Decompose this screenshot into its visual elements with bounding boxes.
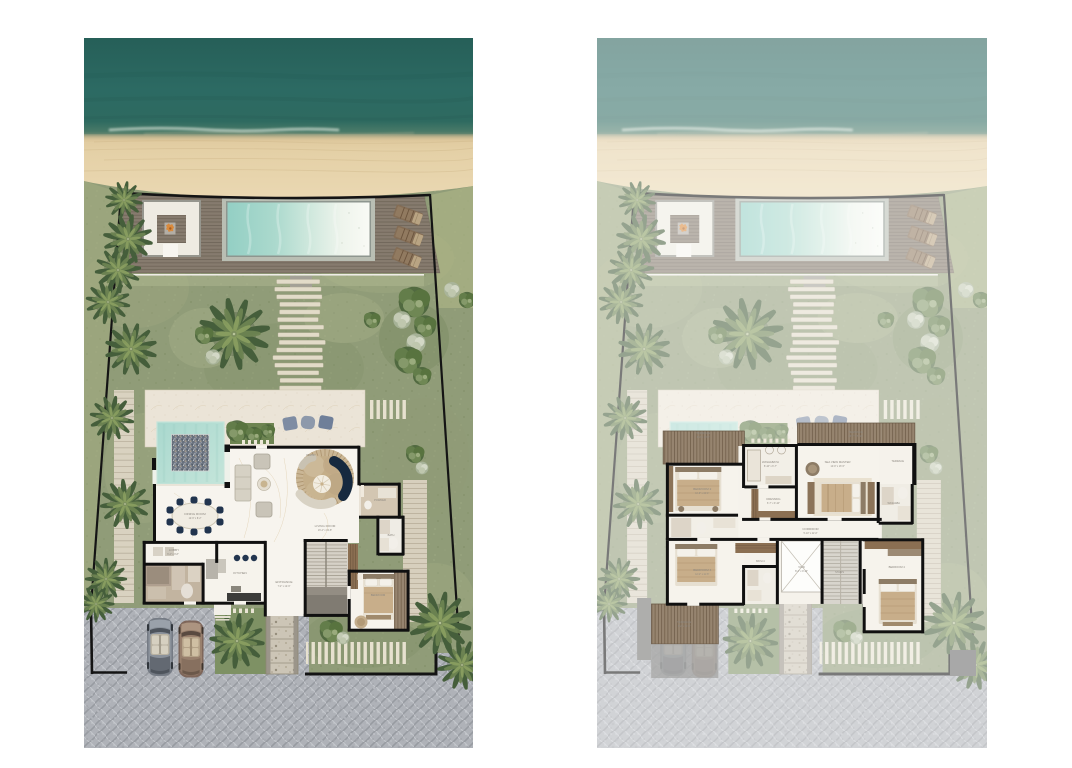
svg-text:6'-2" x 9'-8": 6'-2" x 9'-8" <box>167 554 179 556</box>
svg-text:TERRACE: TERRACE <box>848 430 862 434</box>
svg-text:DINING ROOM: DINING ROOM <box>184 512 206 516</box>
svg-text:25'-7" x 5'-10": 25'-7" x 5'-10" <box>849 436 863 438</box>
svg-text:BATH 4: BATH 4 <box>756 560 765 563</box>
svg-text:7'-2" x 12'-6": 7'-2" x 12'-6" <box>278 586 291 588</box>
svg-text:16'-4" x 19'-8": 16'-4" x 19'-8" <box>318 530 332 532</box>
svg-text:8'-2" x 9'-10": 8'-2" x 9'-10" <box>795 571 808 573</box>
svg-text:BEDROOM 4: BEDROOM 4 <box>693 568 711 572</box>
svg-text:BEDROOM: BEDROOM <box>371 593 386 597</box>
svg-text:8'-2" x 11'-6": 8'-2" x 11'-6" <box>678 626 691 628</box>
svg-text:POWDER: POWDER <box>374 498 386 502</box>
svg-text:PANTRY: PANTRY <box>306 454 316 457</box>
svg-text:8'-10" x 6'-7": 8'-10" x 6'-7" <box>764 466 777 468</box>
svg-text:VOID: VOID <box>798 565 805 569</box>
svg-text:BEDROOM 2: BEDROOM 2 <box>693 487 711 491</box>
svg-text:TERRACE: TERRACE <box>677 620 691 624</box>
svg-text:6'-7" x 9'-10": 6'-7" x 9'-10" <box>767 503 780 505</box>
svg-text:WASH&BATH: WASH&BATH <box>762 460 779 464</box>
svg-text:STAIRS: STAIRS <box>835 571 844 574</box>
svg-text:SEA VIEW MASTER: SEA VIEW MASTER <box>825 460 851 464</box>
svg-text:12'-6" x 8'-2": 12'-6" x 8'-2" <box>189 518 202 520</box>
svg-text:12'-2" x 11'-6": 12'-2" x 11'-6" <box>695 574 709 576</box>
svg-text:CORRIDOR: CORRIDOR <box>802 527 819 531</box>
svg-text:WASH&BA: WASH&BA <box>888 502 901 505</box>
svg-text:11'-6" x 13'-1": 11'-6" x 13'-1" <box>695 493 709 495</box>
svg-text:KITCHEN: KITCHEN <box>233 571 247 575</box>
svg-text:5'-10" x 22'-0": 5'-10" x 22'-0" <box>803 533 817 535</box>
svg-text:DRESSING: DRESSING <box>766 497 780 501</box>
svg-text:14'-9" x 16'-5": 14'-9" x 16'-5" <box>831 466 845 468</box>
svg-text:8'-2" x 19'-8": 8'-2" x 19'-8" <box>697 437 710 439</box>
svg-text:TERRACE: TERRACE <box>696 431 710 435</box>
svg-text:BEDROOM 4: BEDROOM 4 <box>889 565 906 569</box>
svg-text:BATH: BATH <box>388 533 395 537</box>
svg-text:LIVING ROOM: LIVING ROOM <box>315 524 336 528</box>
svg-text:TERRACE: TERRACE <box>892 459 905 463</box>
svg-text:LOBBY: LOBBY <box>169 548 179 552</box>
svg-text:ENTRANCE: ENTRANCE <box>275 580 292 584</box>
